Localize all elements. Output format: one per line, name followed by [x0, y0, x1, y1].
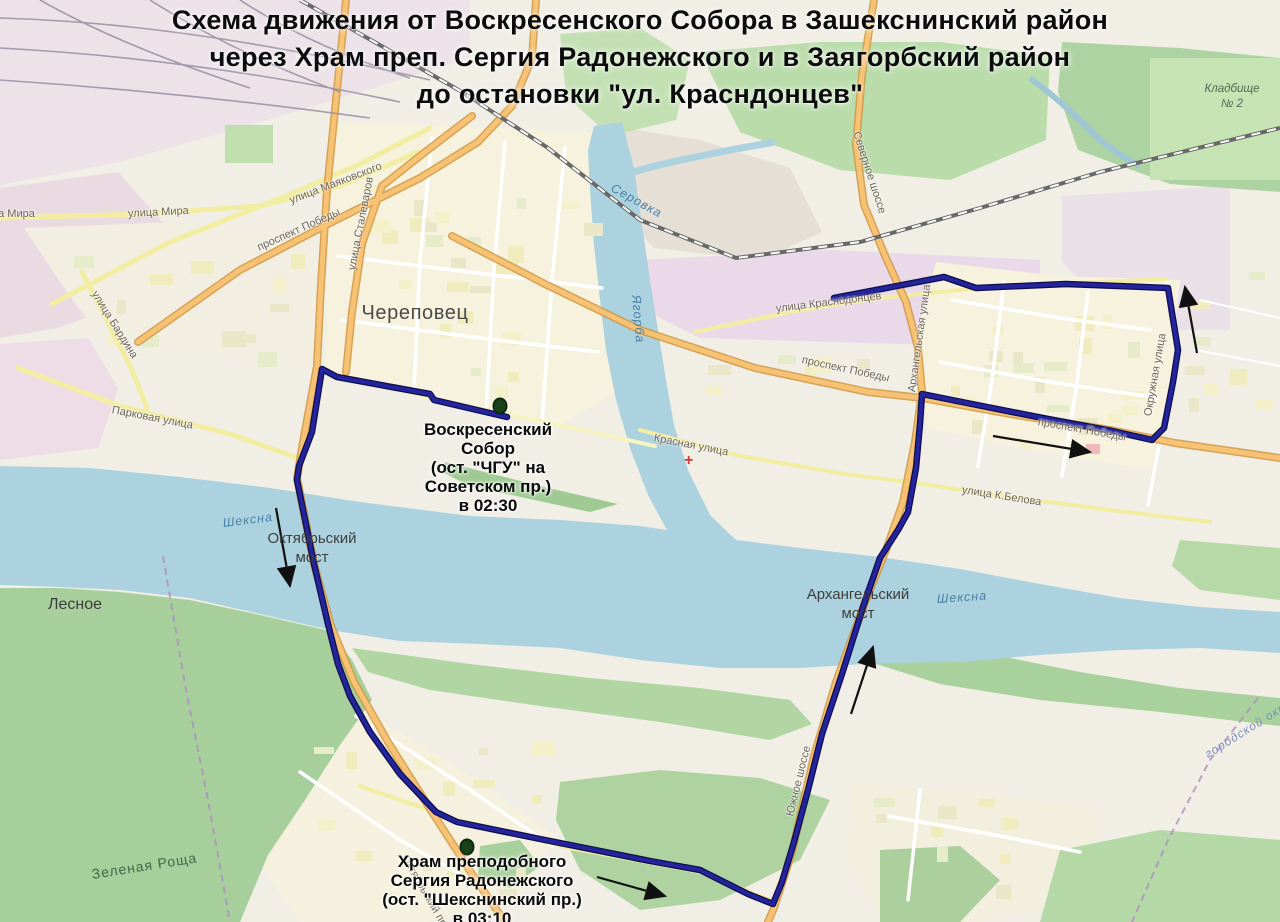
building	[938, 806, 957, 819]
building	[584, 223, 603, 236]
building	[1128, 342, 1140, 358]
building	[1256, 399, 1273, 410]
building	[706, 385, 722, 395]
building	[318, 820, 335, 831]
stop-khram-sergiya-radonezhskogo-marker	[461, 840, 474, 855]
building	[876, 814, 887, 823]
building	[443, 782, 455, 796]
building	[937, 847, 948, 862]
building	[495, 386, 508, 398]
building	[1044, 362, 1067, 371]
building	[517, 198, 526, 209]
building	[1230, 369, 1247, 385]
route-scheme-map: ЧереповецЛесноеЗеленая РощаОктябрьский м…	[0, 0, 1280, 922]
building	[457, 311, 473, 324]
building	[270, 304, 289, 312]
building	[996, 885, 1011, 899]
building	[150, 274, 173, 285]
building	[451, 258, 466, 268]
building	[1103, 315, 1112, 329]
building	[708, 365, 731, 375]
building	[1189, 398, 1199, 412]
building	[356, 851, 372, 861]
building	[516, 868, 526, 879]
building	[531, 742, 555, 756]
building	[1122, 406, 1138, 415]
building	[1108, 414, 1122, 423]
title-line-3: до остановки "ул. Красндонцев"	[0, 79, 1280, 110]
map-canvas	[0, 0, 1280, 922]
building	[191, 261, 214, 274]
building	[979, 799, 995, 807]
building	[1185, 366, 1205, 375]
stop-voskresensky-sobor-marker	[494, 399, 507, 414]
building	[508, 246, 524, 263]
building	[258, 352, 277, 367]
building	[1013, 363, 1034, 373]
building	[424, 222, 437, 232]
building	[440, 324, 451, 338]
building	[532, 795, 542, 804]
building	[1001, 818, 1018, 830]
building	[346, 752, 357, 769]
building	[426, 235, 443, 247]
building	[447, 282, 469, 292]
building	[222, 331, 246, 347]
building	[951, 386, 960, 396]
building	[74, 256, 94, 268]
building	[778, 355, 796, 364]
belova-road	[908, 482, 1210, 522]
building	[362, 185, 377, 192]
building	[499, 889, 517, 903]
building	[471, 368, 481, 376]
building	[857, 359, 870, 369]
title-line-2: через Храм преп. Сергия Радонежского и в…	[0, 42, 1280, 73]
building	[314, 747, 334, 754]
building	[274, 278, 286, 293]
building	[473, 780, 495, 788]
building	[1047, 405, 1069, 412]
building	[1249, 272, 1265, 280]
building	[874, 798, 895, 807]
building	[435, 212, 449, 223]
building	[399, 280, 411, 289]
building	[117, 300, 126, 314]
title-line-1: Схема движения от Воскресенского Собора …	[0, 5, 1280, 36]
building	[1000, 854, 1010, 864]
building	[811, 357, 832, 374]
building	[470, 286, 492, 293]
building	[1204, 384, 1217, 396]
building	[1196, 337, 1211, 346]
building	[508, 372, 519, 382]
building	[479, 748, 488, 755]
building	[291, 254, 305, 269]
